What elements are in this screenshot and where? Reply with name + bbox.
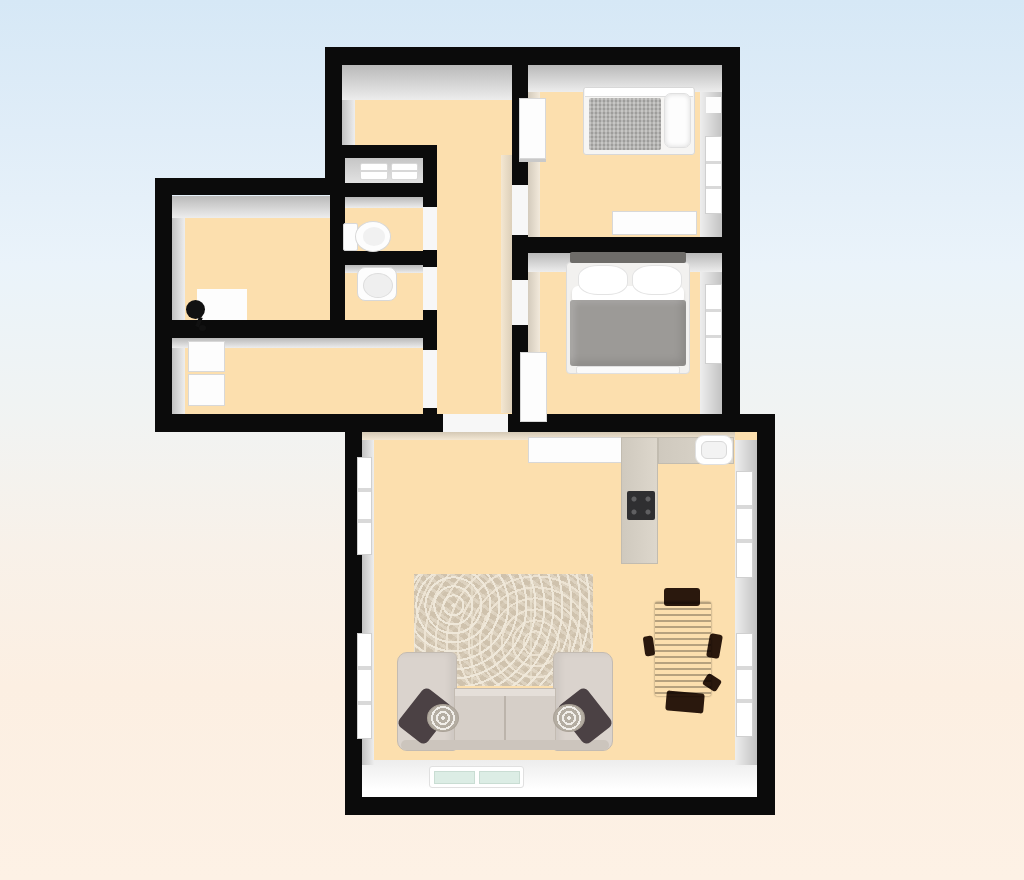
bedroom-middle-right-window bbox=[705, 284, 722, 364]
living-left-window-top bbox=[357, 457, 372, 555]
double-bed bbox=[566, 252, 690, 376]
bottom-glass-pane-right bbox=[479, 771, 520, 784]
sofa-round-cushion-right bbox=[553, 704, 585, 732]
living-right-window-top bbox=[736, 471, 753, 578]
wall-bottom-right-segment bbox=[508, 414, 775, 432]
sideboard bbox=[528, 437, 623, 463]
door-bathroom bbox=[423, 267, 437, 310]
closet-linens-left bbox=[360, 163, 388, 180]
kitchen-sink-basin bbox=[701, 441, 727, 459]
wall-bottom-left-segment bbox=[155, 414, 443, 432]
double-bed-pillow-right bbox=[632, 265, 682, 295]
wall-corridor-left-d bbox=[423, 408, 437, 420]
bottom-glass-window bbox=[429, 766, 524, 788]
floor-lamp-foot bbox=[199, 325, 206, 331]
wall-livingroom-bottom bbox=[345, 797, 775, 815]
wall-corridor-left-b bbox=[423, 250, 437, 267]
door-wc bbox=[423, 207, 437, 250]
white-mat bbox=[197, 289, 247, 320]
wall-leftwing-left bbox=[155, 178, 172, 432]
door-bedroom-middle-right bbox=[512, 280, 528, 325]
double-bed-headboard bbox=[570, 252, 686, 263]
sectional-sofa bbox=[397, 652, 613, 751]
corridor-east-wall-face bbox=[501, 155, 512, 413]
washbasin-bowl bbox=[363, 273, 393, 298]
wall-wc-bath-divider bbox=[330, 251, 437, 265]
dresser bbox=[612, 211, 697, 235]
sofa-base bbox=[401, 740, 609, 750]
double-bed-pillow-left bbox=[578, 265, 628, 295]
fridge bbox=[188, 341, 225, 372]
wall-top-outer bbox=[325, 47, 740, 65]
single-bed bbox=[583, 87, 695, 155]
bedroom-middle-right-cabinet bbox=[520, 352, 547, 422]
toilet-bowl-inner bbox=[363, 227, 385, 246]
wall-closet-top bbox=[330, 145, 437, 158]
door-corridor-to-living bbox=[443, 414, 508, 432]
double-bed-footrail bbox=[576, 366, 680, 374]
wall-corridor-left-a bbox=[423, 145, 437, 207]
living-room-south-face bbox=[362, 760, 757, 797]
hall-west-wall-face bbox=[342, 100, 355, 145]
single-bed-mattress bbox=[589, 98, 661, 150]
dining-set bbox=[644, 588, 722, 714]
hall-north-wall-face bbox=[342, 65, 512, 100]
door-room-lower-left bbox=[423, 350, 437, 408]
wall-closet-bottom bbox=[330, 183, 437, 197]
bottom-glass-pane-left bbox=[434, 771, 475, 784]
sofa-middle-bench bbox=[454, 688, 556, 744]
wardrobe bbox=[519, 98, 546, 159]
floor-lamp-icon bbox=[186, 300, 205, 319]
bedroom-top-right-wall-mark bbox=[706, 97, 721, 113]
cooktop bbox=[627, 491, 655, 520]
sofa-round-cushion-left bbox=[427, 704, 459, 732]
door-bedroom-top-right bbox=[512, 185, 528, 235]
dining-chair-left bbox=[643, 635, 656, 656]
closet-linens-right bbox=[391, 163, 418, 180]
wall-corridor-left-c bbox=[423, 310, 437, 350]
single-bed-pillow bbox=[664, 93, 691, 148]
room-upper-left-west-face bbox=[172, 218, 185, 320]
lower-left-cabinet bbox=[188, 374, 225, 406]
floorplan-canvas bbox=[0, 0, 1024, 880]
wall-livingroom-right bbox=[757, 414, 775, 815]
wall-bedrooms-divider bbox=[512, 237, 740, 253]
room-upper-left-north-face bbox=[172, 196, 330, 218]
wc-north-face bbox=[337, 197, 423, 208]
living-left-window-bottom bbox=[357, 633, 372, 739]
living-right-window-bottom bbox=[736, 633, 753, 737]
double-bed-blanket bbox=[570, 300, 686, 366]
bedroom-top-right-window bbox=[705, 136, 722, 214]
wall-leftwing-top bbox=[155, 178, 345, 195]
dining-table bbox=[655, 602, 711, 696]
room-lower-left-west-face bbox=[172, 348, 185, 414]
